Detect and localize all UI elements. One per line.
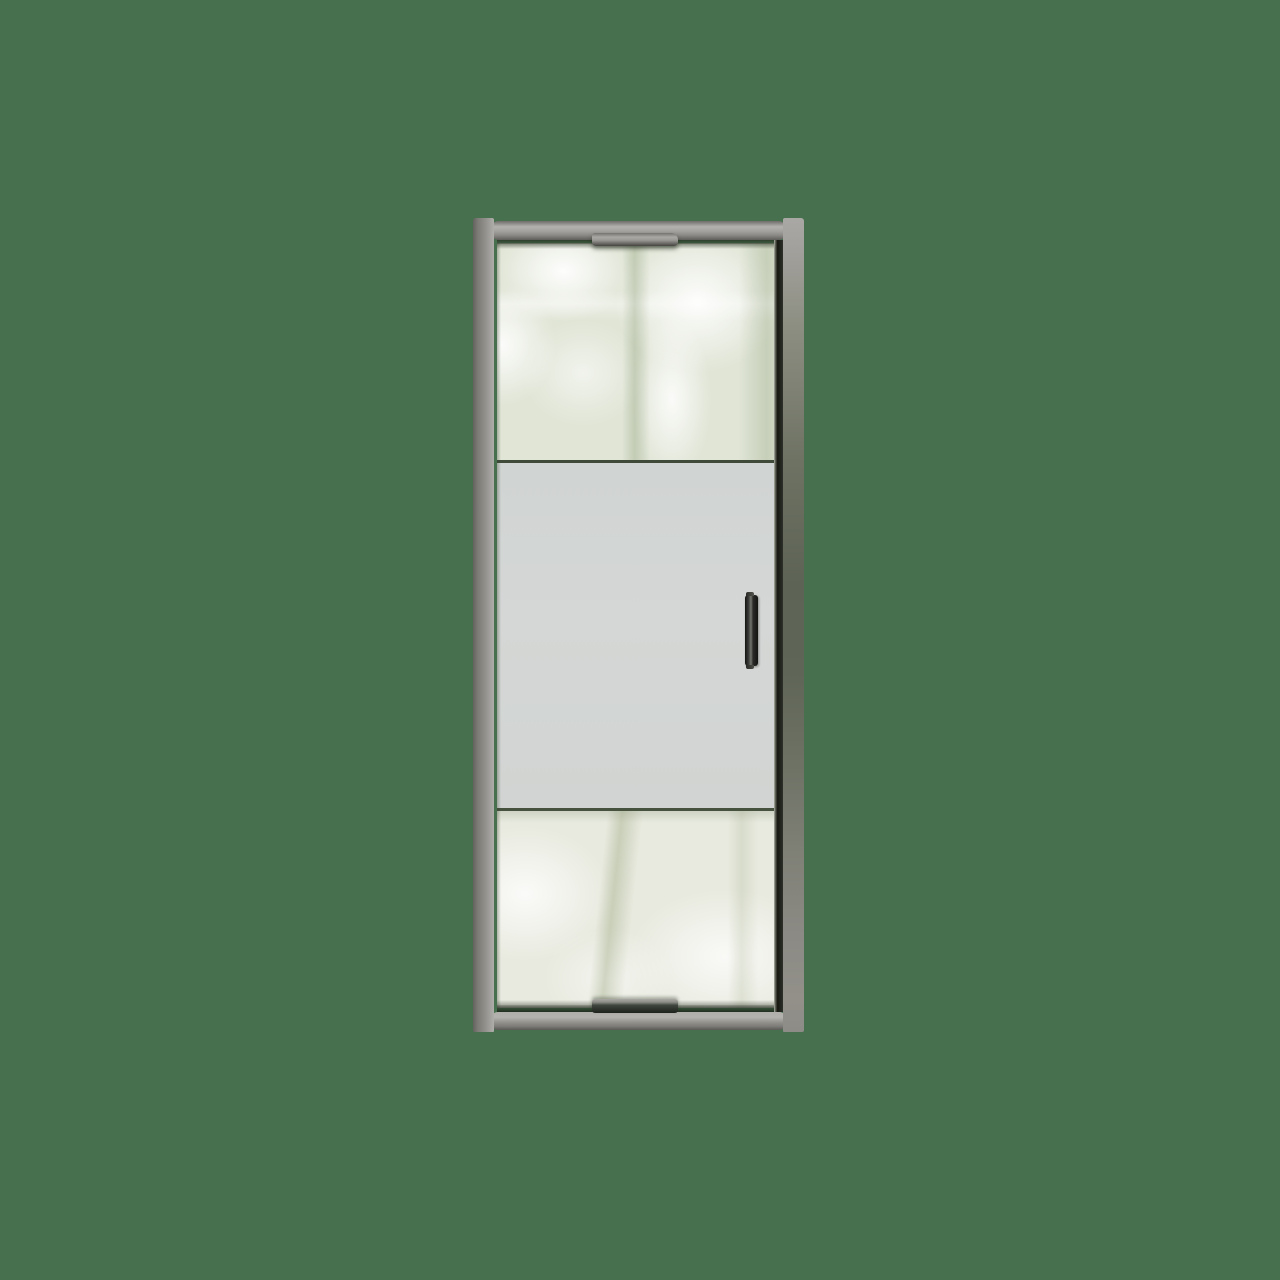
- page-background: [0, 0, 1280, 1280]
- glass-frosted-band: [497, 463, 775, 808]
- shower-door: [473, 218, 804, 1032]
- frame-bottom-rail: [490, 1012, 787, 1030]
- frame-left-post: [473, 218, 494, 1032]
- door-handle: [745, 595, 758, 666]
- glass-clear-band-top: [497, 243, 775, 460]
- glass-left-edge-shadow: [497, 243, 501, 1008]
- glass-panel: [497, 243, 775, 1008]
- glass-clear-band-bottom: [497, 811, 775, 1008]
- bottom-mount-bracket: [592, 999, 678, 1013]
- frame-right-post: [783, 218, 804, 1032]
- top-mount-bracket: [592, 233, 678, 246]
